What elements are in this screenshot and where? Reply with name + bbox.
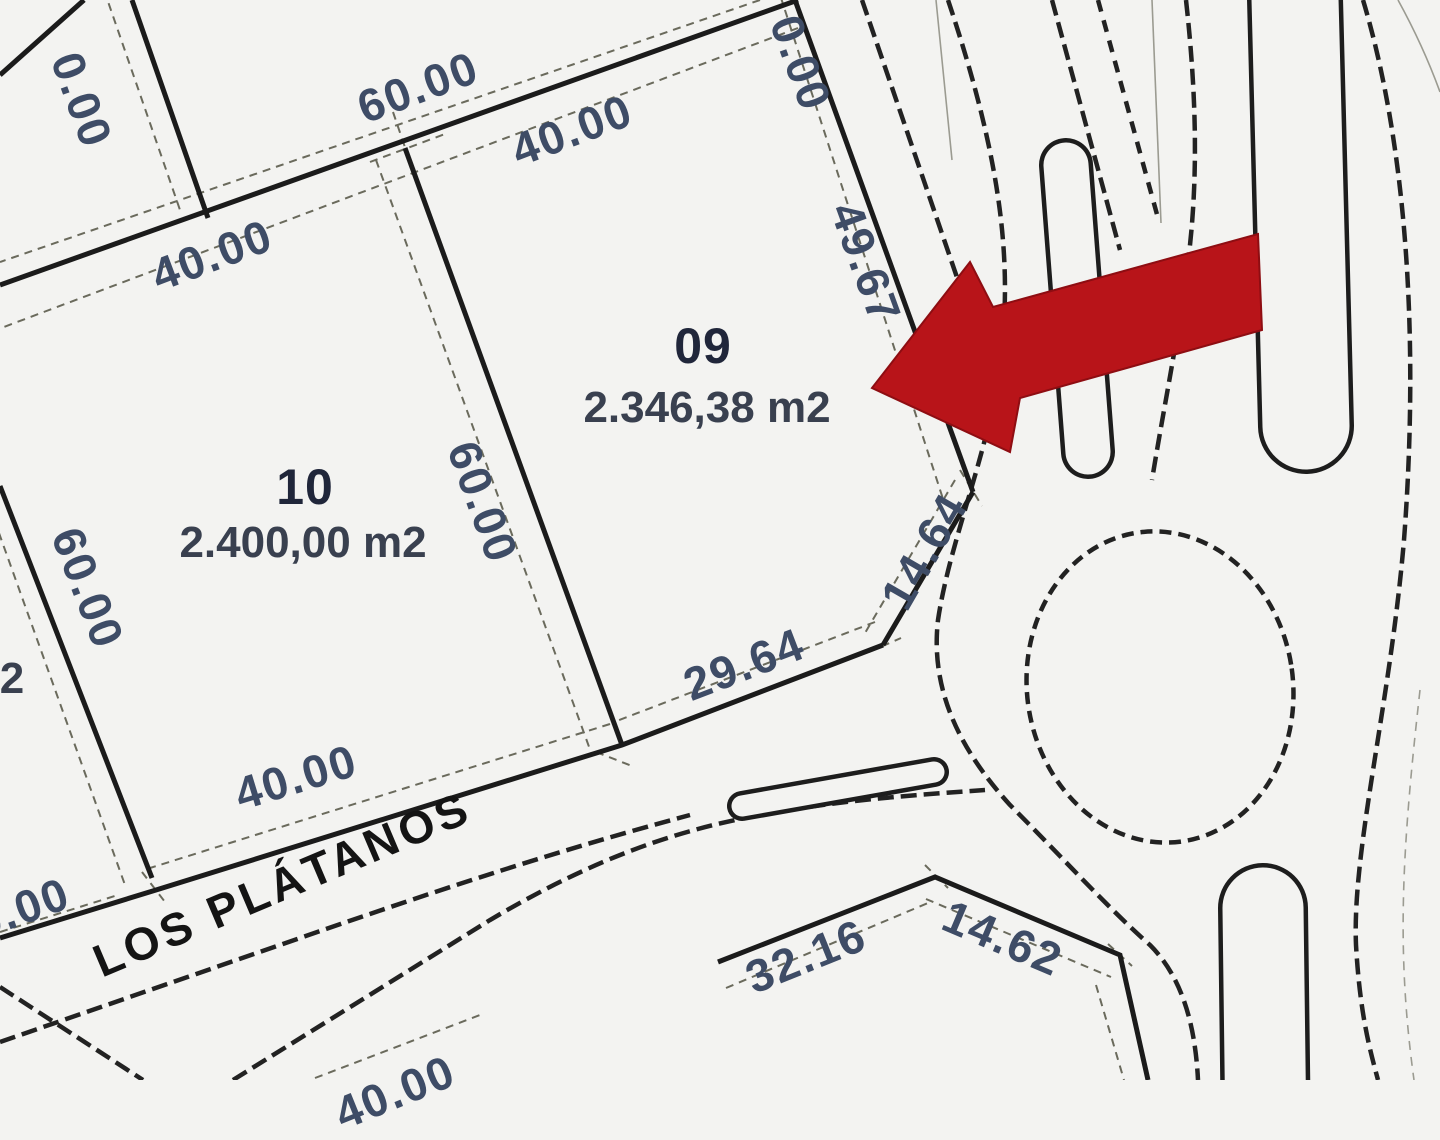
roundabout (1007, 514, 1314, 860)
lot10-area: 2.400,00 m2 (179, 521, 426, 565)
cadastral-plan-page: { "title": "Cadastral lot plan with high… (0, 0, 1440, 1080)
north-block-lot-line (132, 0, 208, 218)
roundabout-circle (1007, 514, 1314, 860)
lot10-number: 10 (276, 462, 334, 512)
lot09-number: 09 (674, 321, 732, 371)
rear-block-line (0, 0, 798, 285)
lot09-area: 2.346,38 m2 (583, 386, 830, 430)
west-lot-area-fragment: 2 (0, 657, 24, 701)
lot10-lot09-shared-line (405, 148, 622, 745)
